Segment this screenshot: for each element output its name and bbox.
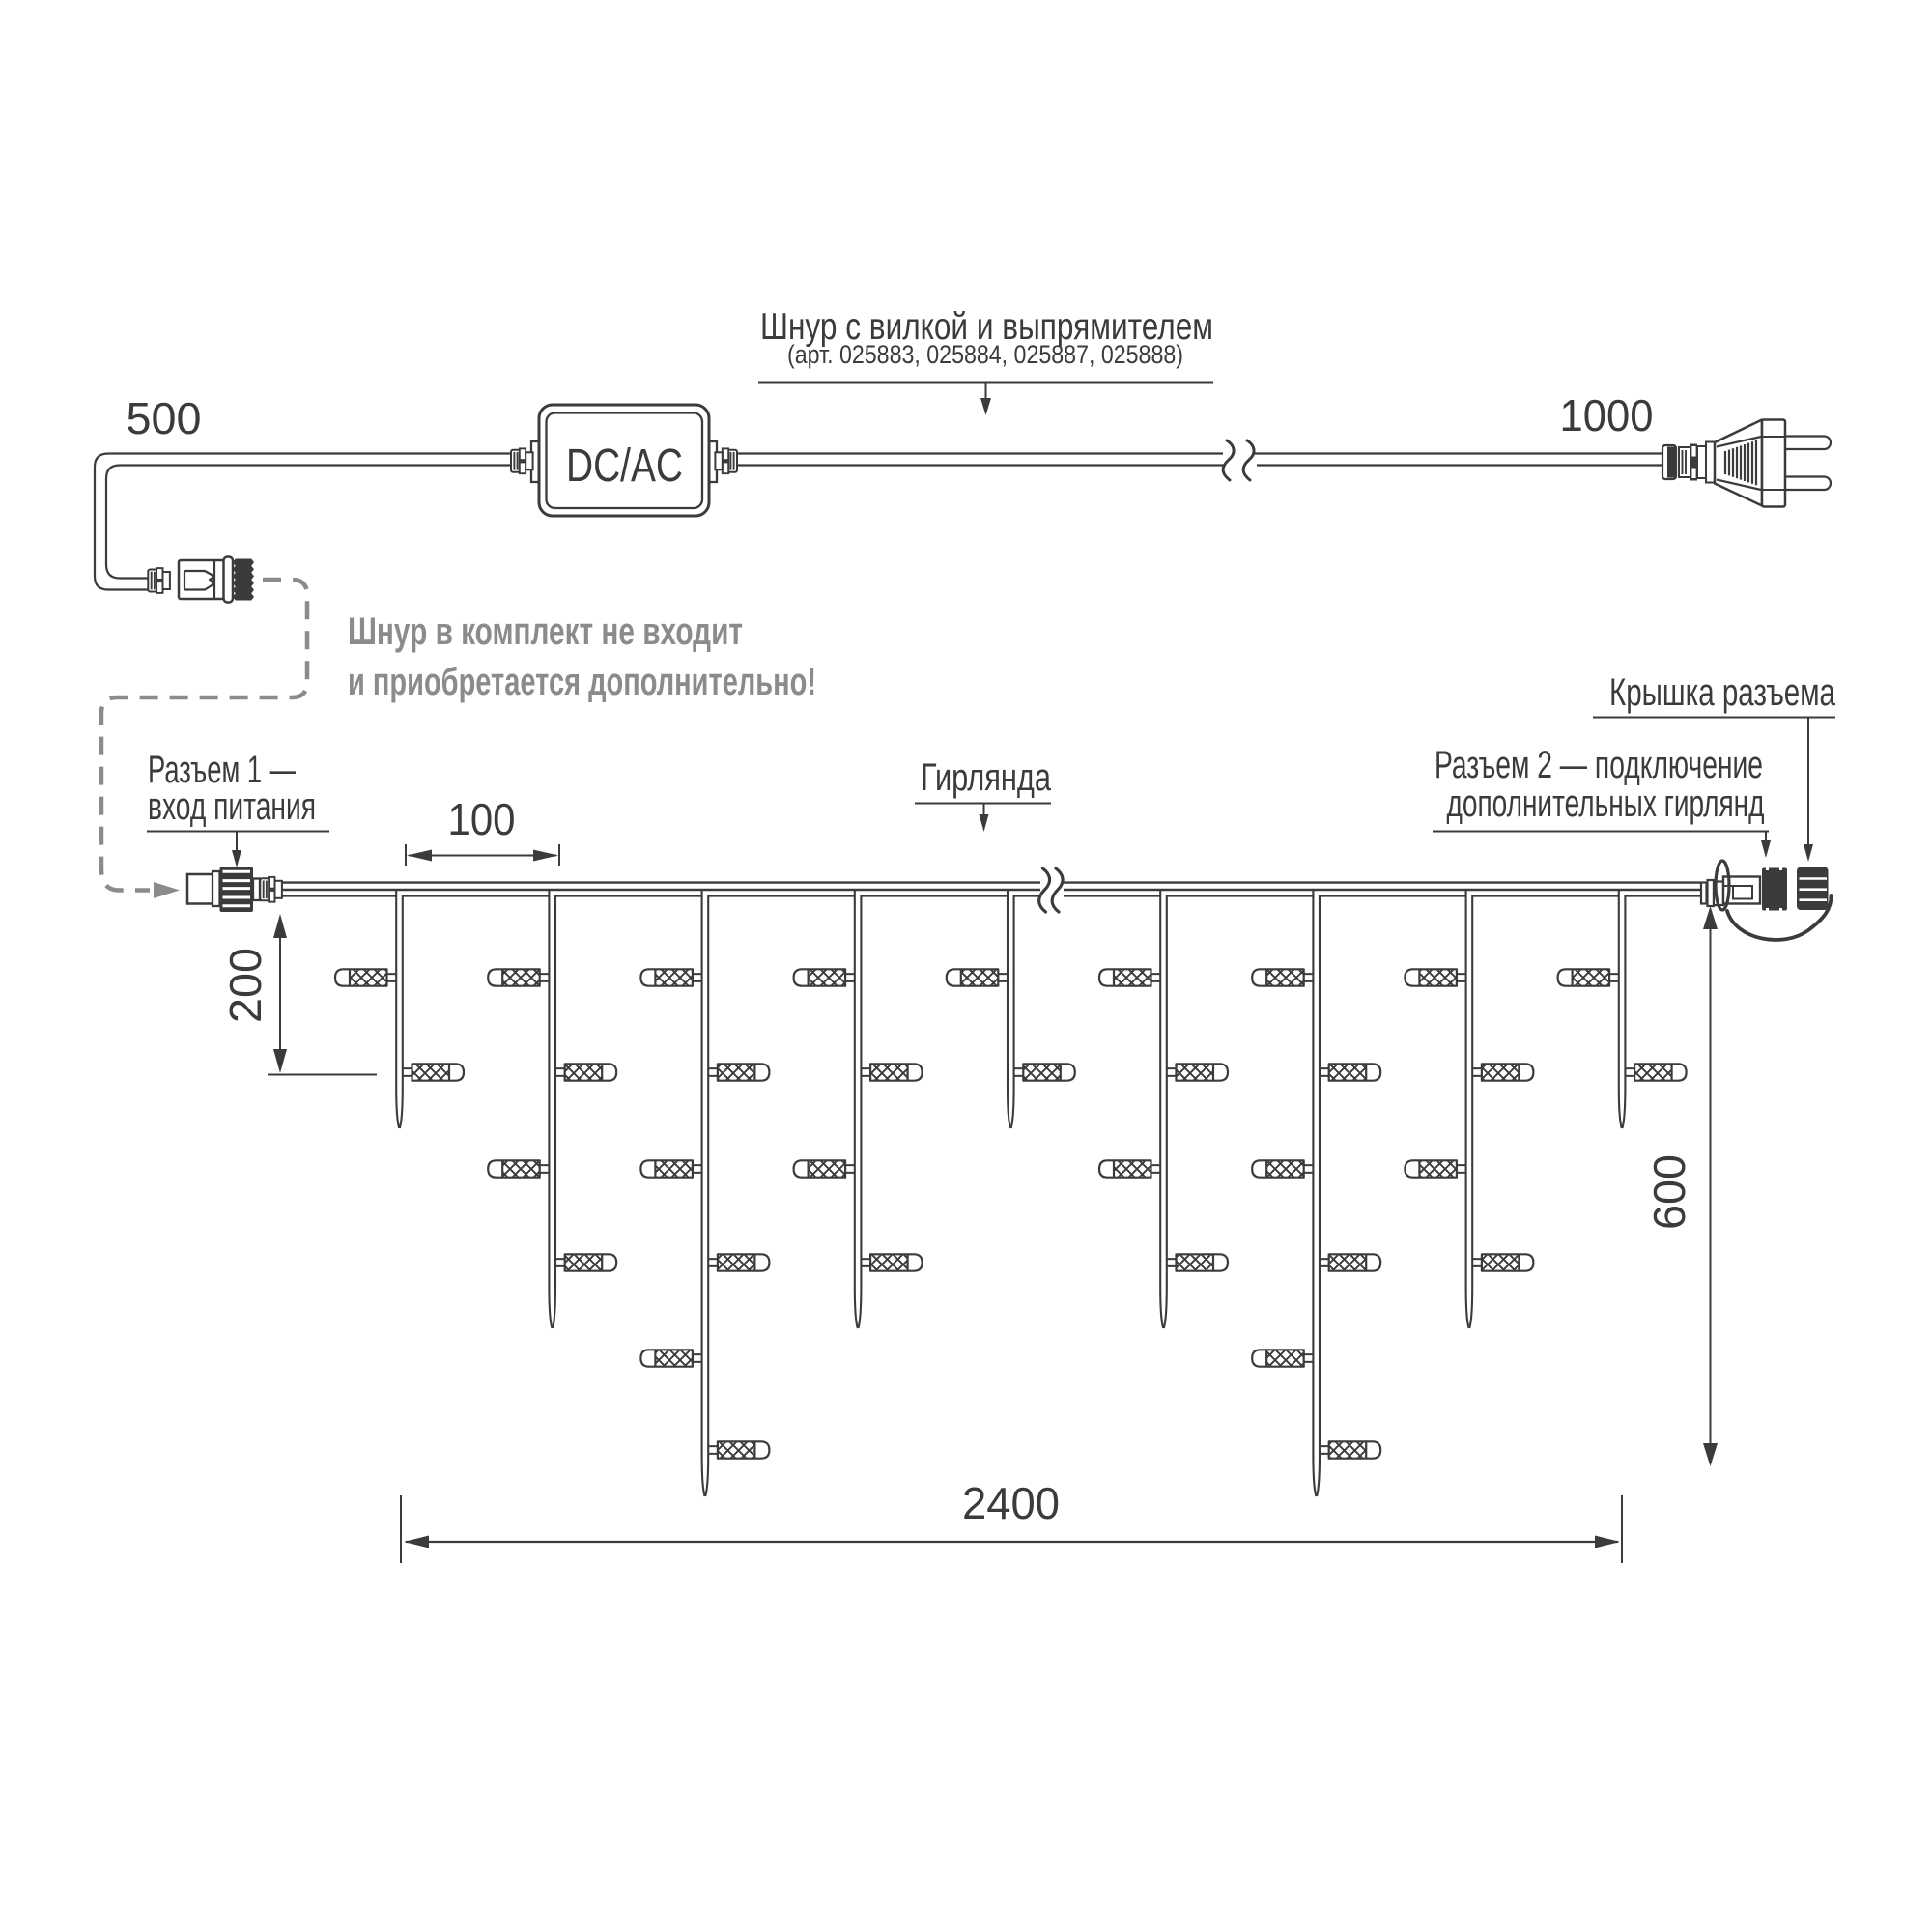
- svg-text:Шнур в комплект не входит: Шнур в комплект не входит: [348, 611, 743, 653]
- svg-text:вход питания: вход питания: [148, 785, 316, 828]
- svg-text:(арт. 025883, 025884, 025887,: (арт. 025883, 025884, 025887, 025888): [787, 340, 1183, 369]
- svg-text:дополнительных гирлянд: дополнительных гирлянд: [1447, 782, 1765, 825]
- svg-text:600: 600: [1644, 1154, 1694, 1230]
- svg-text:Гирлянда: Гирлянда: [921, 756, 1052, 799]
- svg-text:Крышка разъема: Крышка разъема: [1609, 671, 1836, 714]
- svg-text:2400: 2400: [962, 1478, 1060, 1528]
- svg-text:DC/AC: DC/AC: [566, 440, 683, 492]
- svg-text:100: 100: [448, 794, 516, 844]
- svg-text:1000: 1000: [1560, 390, 1654, 440]
- svg-text:200: 200: [220, 948, 270, 1023]
- svg-text:Разъем 2 — подключение: Разъем 2 — подключение: [1435, 744, 1763, 786]
- svg-text:500: 500: [127, 393, 202, 443]
- svg-text:и приобретается дополнительно!: и приобретается дополнительно!: [348, 661, 816, 703]
